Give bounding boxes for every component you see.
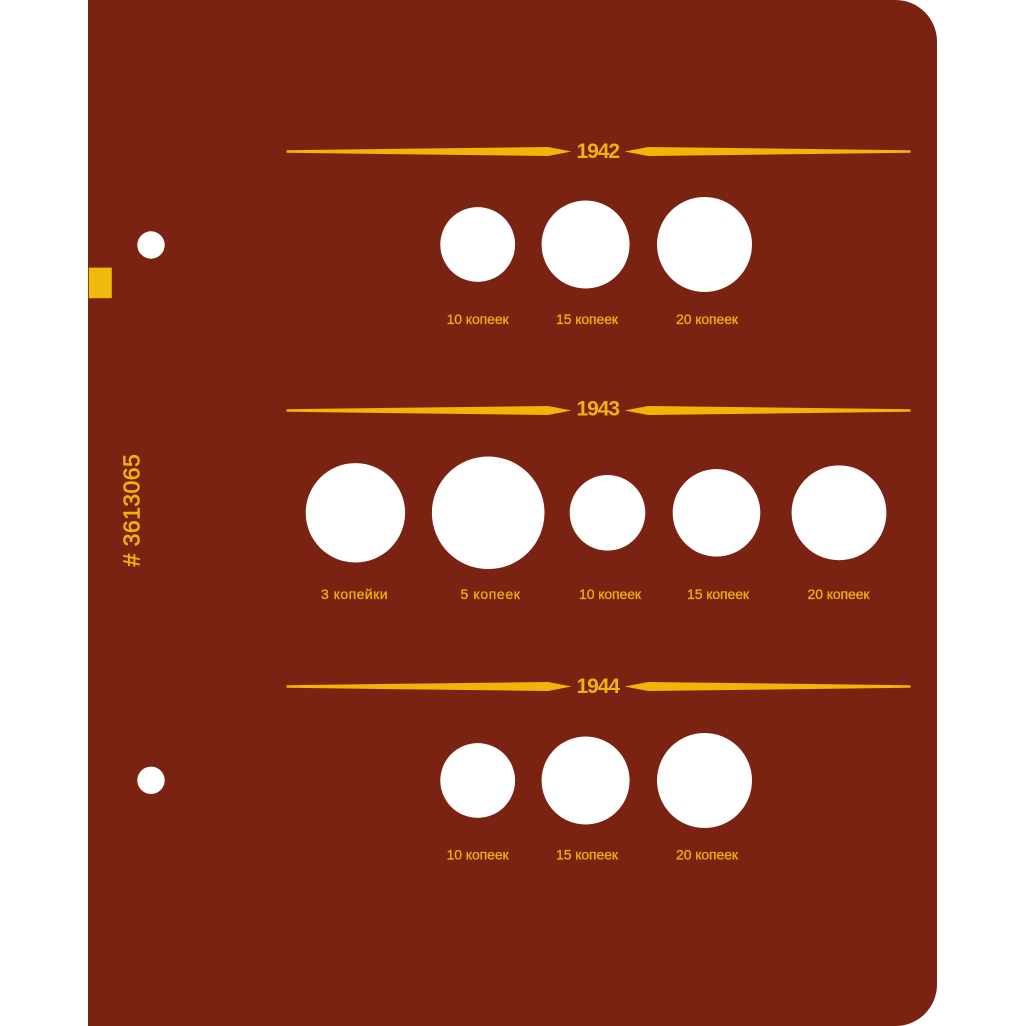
svg-text:20 копеек: 20 копеек: [676, 846, 739, 862]
svg-text:1943: 1943: [577, 398, 620, 421]
svg-text:20 копеек: 20 копеек: [676, 311, 739, 327]
svg-text:15 копеек: 15 копеек: [556, 846, 619, 862]
svg-text:1944: 1944: [577, 675, 621, 698]
svg-text:10 копеек: 10 копеек: [579, 586, 642, 602]
svg-text:15 копеек: 15 копеек: [687, 586, 750, 602]
svg-text:3 копейки: 3 копейки: [321, 586, 388, 602]
svg-text:5 копеек: 5 копеек: [461, 586, 521, 602]
svg-text:15 копеек: 15 копеек: [556, 311, 619, 327]
svg-text:# 3613065: # 3613065: [119, 454, 145, 567]
svg-text:10 копеек: 10 копеек: [447, 846, 510, 862]
svg-text:20 копеек: 20 копеек: [808, 586, 871, 602]
svg-text:1942: 1942: [577, 140, 620, 163]
svg-text:10 копеек: 10 копеек: [447, 311, 510, 327]
